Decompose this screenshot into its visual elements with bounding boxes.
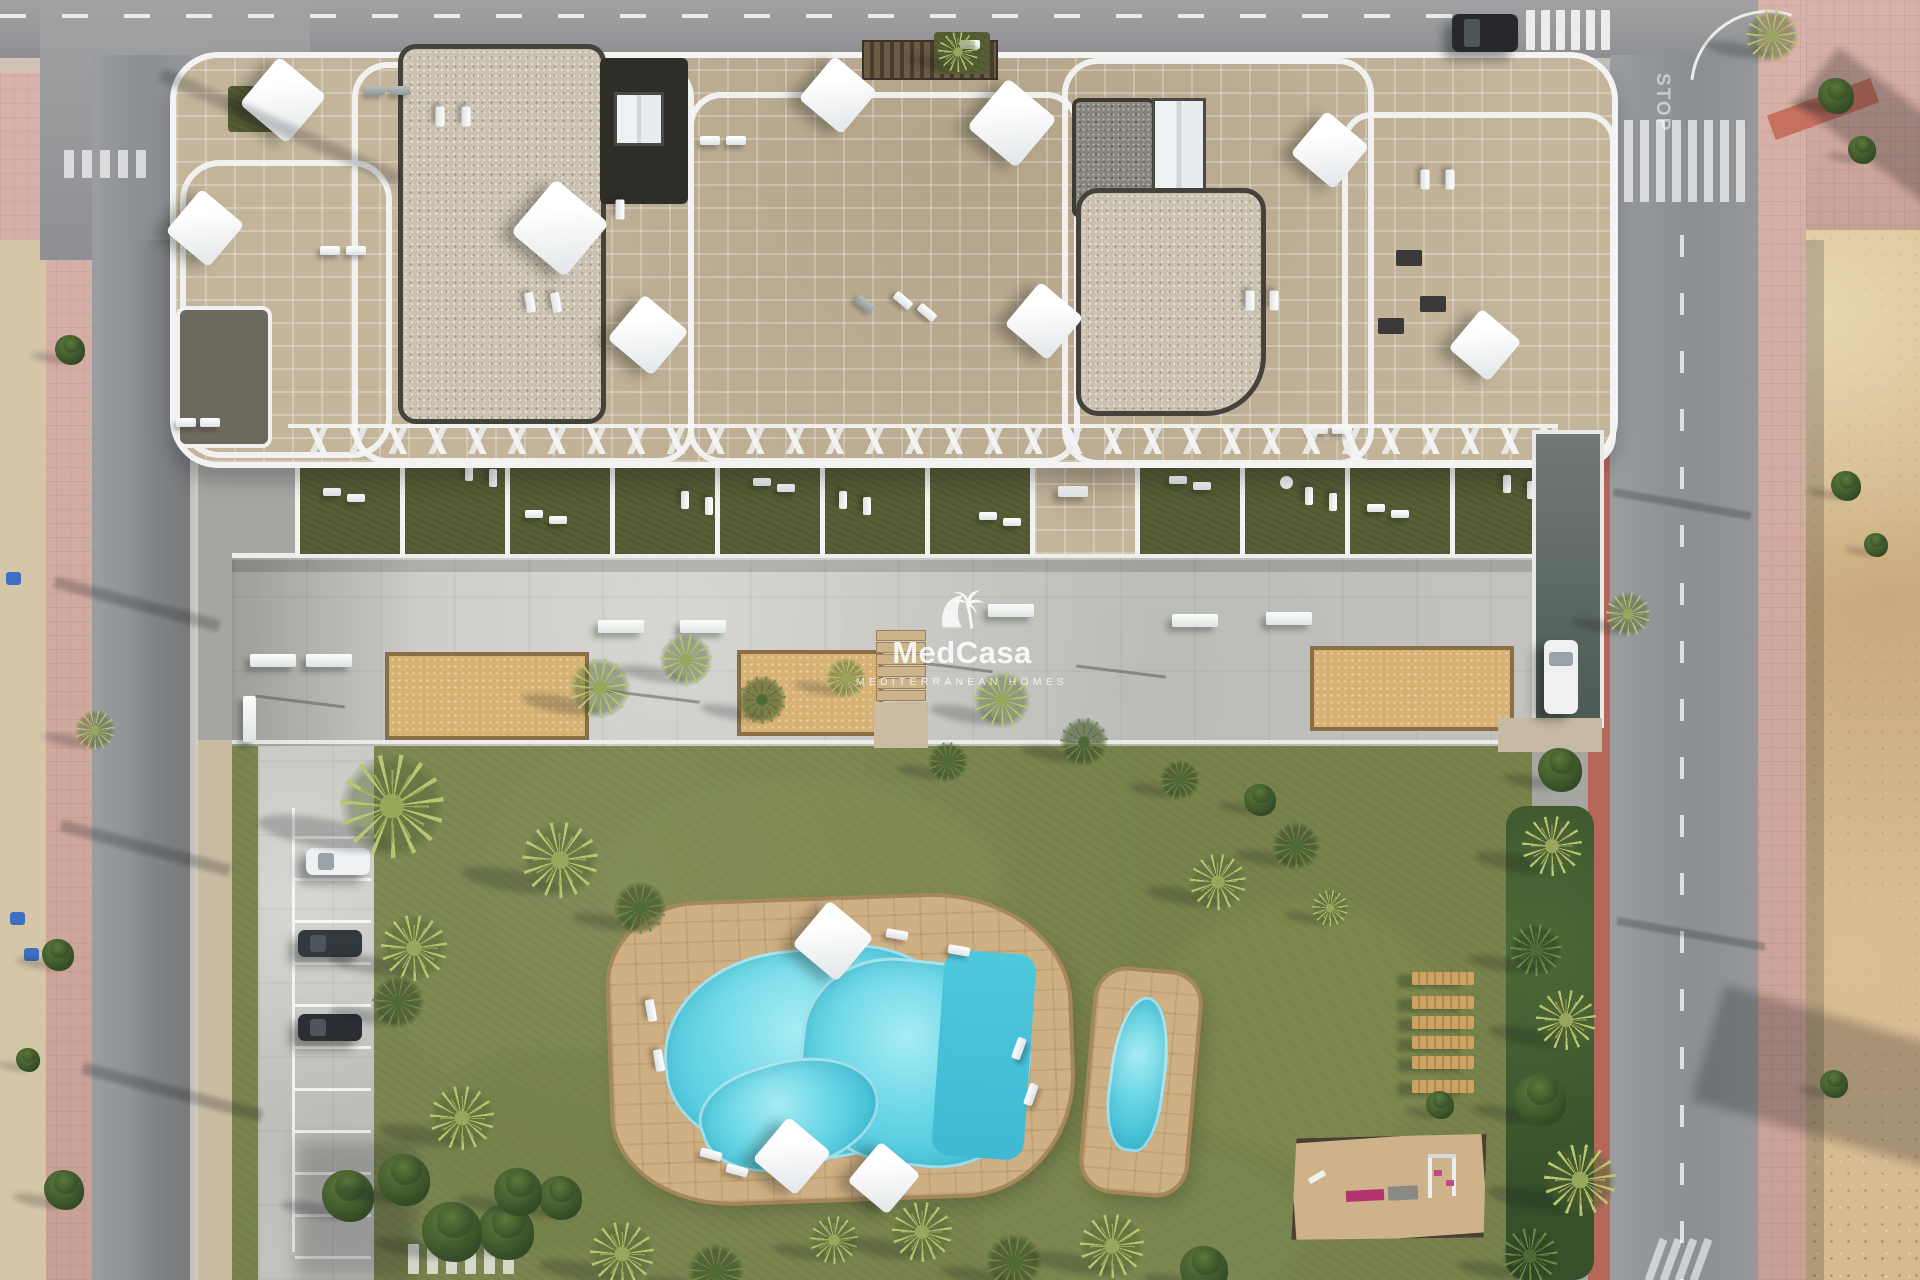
bush <box>1827 80 1849 100</box>
parking-stall-line <box>295 1046 371 1049</box>
path-crosswalk-dash <box>100 150 110 178</box>
parking-edge-line <box>292 808 295 1252</box>
crosswalk-stripe <box>1586 10 1595 50</box>
path-crosswalk-dash <box>64 150 74 178</box>
bush <box>1855 137 1872 152</box>
building-shadow-on-deck <box>232 560 1532 572</box>
sun-lounger <box>347 494 365 502</box>
rooftop-ac-unit <box>1420 296 1446 312</box>
gravel-roof <box>1076 188 1266 416</box>
deck-bench <box>1172 614 1218 627</box>
crosswalk-stripe <box>1640 120 1649 202</box>
sun-lounger <box>1367 504 1385 512</box>
sun-lounger <box>489 469 497 487</box>
sun-lounger <box>1421 170 1430 190</box>
deck-bench <box>680 620 726 633</box>
swing-seat <box>1434 1170 1442 1176</box>
sun-lounger <box>323 488 341 496</box>
sun-lounger <box>753 478 771 486</box>
car-windshield <box>1464 19 1480 47</box>
playground-bench-row <box>1346 1189 1385 1202</box>
parking-stall-line <box>295 878 371 881</box>
deck-bench <box>598 620 644 633</box>
swing-bar <box>1428 1154 1456 1158</box>
sun-lounger <box>1446 170 1455 190</box>
wood-bench <box>1412 972 1474 985</box>
crosswalk-stripe <box>1704 120 1713 202</box>
wood-bench <box>1412 1036 1474 1049</box>
watermark: MedCasa MEDITERRANEAN HOMES <box>812 586 1112 688</box>
swing-seat <box>1446 1180 1454 1186</box>
sun-lounger <box>616 200 625 220</box>
terrace-garden <box>510 454 610 554</box>
rooftop-ac-unit <box>1396 250 1422 266</box>
sun-lounger <box>1305 487 1313 505</box>
terrace-garden <box>930 454 1030 554</box>
crosswalk-stripe <box>1541 10 1550 50</box>
sun-lounger <box>320 246 340 255</box>
right-road-centerline <box>1680 235 1684 1280</box>
dirt-edge-shadow <box>1806 240 1824 1280</box>
swing-frame <box>1452 1154 1456 1196</box>
parking-stall-line <box>295 1088 371 1091</box>
sun-lounger <box>549 516 567 524</box>
garden-step-path <box>874 702 928 748</box>
sun-lounger <box>390 86 410 95</box>
sun-lounger <box>525 510 543 518</box>
rooftop-ac-unit <box>1378 318 1404 334</box>
metal-roof-panel <box>614 92 664 146</box>
patio-bench <box>1058 486 1088 497</box>
crosswalk-stripe <box>1526 10 1535 50</box>
sun-lounger <box>681 491 689 509</box>
sun-lounger <box>979 512 997 520</box>
wood-bench <box>1412 1056 1474 1069</box>
terrace-garden <box>720 454 820 554</box>
sun-lounger <box>1003 518 1021 526</box>
top-road-centerline <box>0 14 1520 18</box>
path-crosswalk-dash <box>136 150 146 178</box>
crosswalk-stripe <box>1688 120 1697 202</box>
garage-apron <box>1498 718 1602 752</box>
recycle-bin-blue <box>10 912 25 925</box>
parking-stall-line <box>295 920 371 923</box>
sun-lounger <box>839 491 847 509</box>
crosswalk-stripe <box>1720 120 1729 202</box>
crosswalk-stripe <box>1736 120 1745 202</box>
terrace-garden <box>615 454 715 554</box>
sun-lounger <box>176 418 196 427</box>
sun-lounger <box>462 107 471 127</box>
aerial-site-render: MedCasa MEDITERRANEAN HOMES STOP <box>0 0 1920 1280</box>
wood-bench <box>1412 996 1474 1009</box>
parking-stall-line <box>295 1130 371 1133</box>
deck-bench <box>243 696 256 742</box>
bush <box>1192 1248 1221 1274</box>
deck-bench <box>1266 612 1312 625</box>
pergola-zigzag <box>288 428 1558 454</box>
parking-stall-line <box>295 1004 371 1007</box>
pergola-beam <box>288 424 1558 428</box>
path-crosswalk-dash <box>118 150 128 178</box>
deck-bench <box>306 654 352 667</box>
garden-step <box>876 690 926 701</box>
crosswalk-stripe <box>1601 10 1610 50</box>
deck-bench <box>250 654 296 667</box>
watermark-brand: MedCasa <box>892 635 1032 671</box>
bush <box>1433 1092 1450 1107</box>
sun-lounger <box>200 418 220 427</box>
sun-lounger <box>726 136 746 145</box>
stop-road-marking: STOP <box>1651 73 1673 133</box>
sun-lounger <box>863 497 871 515</box>
car-windshield <box>1549 652 1573 666</box>
bush <box>506 1170 535 1196</box>
car-windshield <box>310 1019 326 1036</box>
terrace-garden <box>1140 454 1240 554</box>
playground-platform <box>1388 1185 1419 1201</box>
car-dark <box>1452 14 1518 52</box>
sun-lounger <box>436 107 445 127</box>
crosswalk-stripe <box>1672 120 1681 202</box>
sun-lounger <box>1503 475 1511 493</box>
sun-lounger <box>705 497 713 515</box>
sun-lounger <box>700 136 720 145</box>
crosswalk-stripe <box>1571 10 1580 50</box>
crosswalk-stripe <box>1556 10 1565 50</box>
sun-lounger <box>1329 493 1337 511</box>
watermark-tagline: MEDITERRANEAN HOMES <box>856 676 1068 688</box>
wood-bench <box>1412 1016 1474 1029</box>
sun-lounger <box>1270 291 1279 311</box>
terrace-garden <box>1350 454 1450 554</box>
bush <box>1839 473 1857 490</box>
left-sand-verge <box>0 240 46 1280</box>
car-windshield <box>318 853 334 870</box>
terrace-garden <box>300 454 400 554</box>
swing-frame <box>1428 1156 1432 1198</box>
path-crosswalk-dash <box>82 150 92 178</box>
bush <box>63 337 81 354</box>
sun-lounger <box>346 246 366 255</box>
balcony-band <box>1342 112 1616 466</box>
palm-arch-logo-icon <box>933 586 991 632</box>
sun-lounger <box>365 86 385 95</box>
recycle-bin-blue <box>6 572 21 585</box>
terrace-table <box>1280 476 1293 489</box>
crosswalk-stripe <box>1624 120 1633 202</box>
sun-lounger <box>1193 482 1211 490</box>
bush <box>1827 1071 1844 1086</box>
sun-lounger <box>1391 510 1409 518</box>
sun-lounger <box>1246 291 1255 311</box>
sun-lounger <box>1169 476 1187 484</box>
car-windshield <box>310 935 326 952</box>
petanque-court <box>1310 646 1514 731</box>
sun-lounger <box>777 484 795 492</box>
